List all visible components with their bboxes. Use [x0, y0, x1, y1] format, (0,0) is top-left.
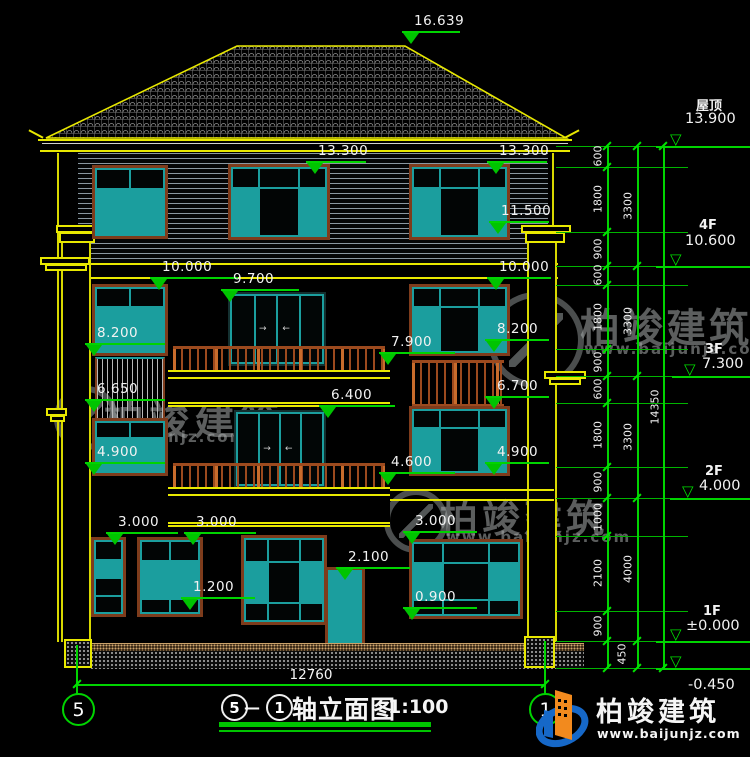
title-underline — [219, 730, 431, 732]
level-label: 2F — [705, 464, 723, 479]
level-triangle-icon: ▽ — [684, 363, 696, 376]
level-triangle-icon: ▽ — [670, 655, 682, 668]
elevation-marker: 6.650 — [85, 381, 165, 415]
title-text: 轴立面图 — [292, 690, 396, 726]
elevation-marker: 9.700 — [221, 271, 299, 305]
window-1f-narrow — [94, 540, 123, 614]
slide-arrow-icon: ← — [282, 325, 290, 334]
elevation-marker: 13.300 — [487, 143, 547, 177]
elevation-marker: 6.700 — [485, 378, 549, 412]
slide-arrow-icon: → — [259, 325, 267, 334]
level-triangle-icon: ▽ — [670, 628, 682, 641]
dim-label-total-height: 14350 — [649, 390, 662, 425]
dim-label: 1800 — [592, 421, 605, 449]
dim-label: 900 — [592, 472, 605, 493]
elevation-marker: 3.000 — [403, 513, 477, 547]
elevation-marker: 0.900 — [403, 589, 477, 623]
level-label: 1F — [703, 604, 721, 619]
window-1f-large — [244, 538, 324, 622]
level-value: 13.900 — [685, 111, 736, 127]
elevation-marker: 7.900 — [379, 334, 455, 368]
level-triangle-icon: ▽ — [670, 253, 682, 266]
balcony-railing-2f — [173, 463, 385, 490]
left-cornice — [45, 264, 87, 271]
elevation-marker: 4.900 — [485, 444, 549, 478]
balcony-railing-3f — [173, 346, 385, 373]
right-cornice — [549, 378, 581, 385]
title-axis-to: 1 — [266, 694, 293, 721]
dim-label: 600 — [592, 146, 605, 167]
level-label: 3F — [705, 342, 723, 357]
axis-bubble-5: 5 — [62, 693, 95, 726]
level-value: 4.000 — [699, 478, 741, 494]
elevation-marker: 1.200 — [181, 579, 255, 613]
4f-floor-band — [76, 263, 558, 279]
left-capital — [59, 232, 95, 243]
level-value: 10.600 — [685, 233, 736, 249]
dim-label: 450 — [616, 644, 629, 665]
elevation-marker: 16.639 — [402, 13, 460, 47]
window-4f-center — [231, 167, 327, 237]
slide-arrow-icon: → — [263, 445, 271, 454]
dim-label: 900 — [592, 352, 605, 373]
dim-label: 600 — [592, 379, 605, 400]
level-triangle-icon: ▽ — [670, 133, 682, 146]
slide-arrow-icon: ← — [285, 445, 293, 454]
elevation-marker: 10.000 — [487, 259, 551, 293]
dim-label: 900 — [592, 616, 605, 637]
logo-url: www.baijunjz.com — [597, 726, 741, 741]
level-value: ±0.000 — [686, 618, 740, 634]
logo-brand: 柏竣建筑 — [596, 690, 720, 729]
eave-fascia-top — [38, 139, 572, 141]
left-bracket — [50, 415, 65, 422]
logo-icon — [536, 686, 590, 752]
level-triangle-icon: ▽ — [682, 485, 694, 498]
title-scale: 1:100 — [388, 696, 448, 718]
elevation-marker: 13.300 — [306, 143, 366, 177]
dim-label: 3300 — [622, 307, 635, 335]
2f-floor-band-right — [390, 489, 554, 501]
left-pilaster — [61, 240, 91, 642]
elevation-marker: 6.400 — [319, 387, 395, 421]
elevation-marker: 3.000 — [106, 514, 178, 548]
elevation-marker: 4.600 — [379, 454, 455, 488]
title-underline — [219, 722, 431, 727]
elevation-marker: 8.200 — [85, 325, 165, 359]
dim-label: 3300 — [622, 192, 635, 220]
dim-label: 3300 — [622, 423, 635, 451]
dim-label: 600 — [592, 265, 605, 286]
dim-label: 2100 — [592, 559, 605, 587]
elevation-marker: 3.000 — [184, 514, 256, 548]
dim-label: 1800 — [592, 185, 605, 213]
elevation-marker: 11.500 — [489, 203, 549, 237]
dim-label: 4000 — [622, 555, 635, 583]
elevation-drawing: 柏竣建筑 www.baijunjz.com 柏竣建筑 www.baijunjz.… — [0, 0, 750, 757]
dim-label: 1000 — [592, 503, 605, 531]
dim-label-total-width: 12760 — [283, 667, 339, 683]
window-4f-left — [95, 168, 165, 236]
dim-label: 900 — [592, 239, 605, 260]
dim-label: 1800 — [592, 303, 605, 331]
level-label: 4F — [699, 218, 717, 233]
roof-tiles — [38, 42, 573, 144]
elevation-marker: 2.100 — [336, 549, 410, 583]
left-pilaster-base — [64, 639, 92, 668]
right-pilaster — [527, 240, 557, 642]
level-value: 7.300 — [702, 356, 744, 372]
elevation-marker: 8.200 — [485, 321, 549, 355]
right-pilaster-base — [524, 636, 555, 668]
title-dash: — — [244, 698, 260, 717]
elevation-marker: 4.900 — [85, 444, 165, 478]
